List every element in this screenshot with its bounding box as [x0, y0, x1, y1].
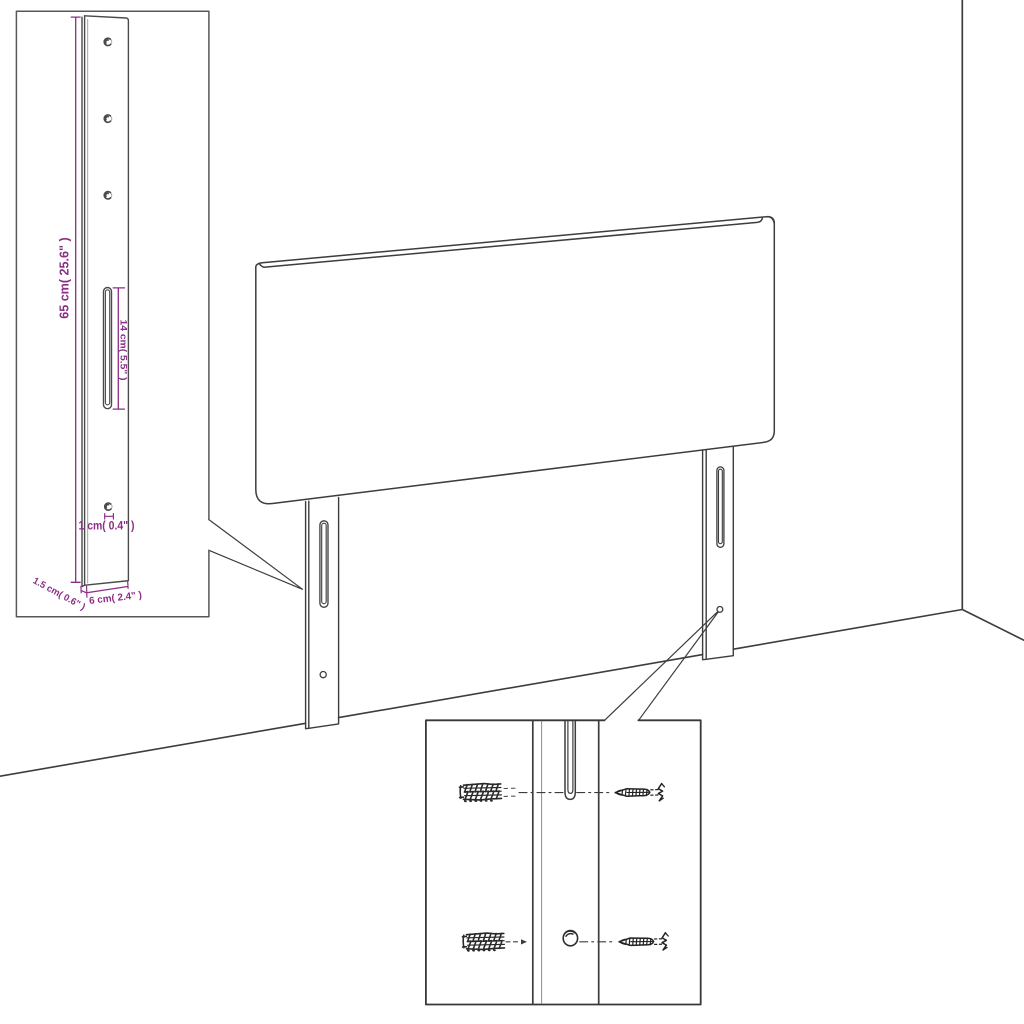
svg-text:65 cm( 25.6" ): 65 cm( 25.6" )	[56, 237, 71, 319]
svg-text:1 cm( 0.4" ): 1 cm( 0.4" )	[79, 519, 135, 532]
svg-text:14 cm( 5.5" ): 14 cm( 5.5" )	[119, 320, 129, 381]
